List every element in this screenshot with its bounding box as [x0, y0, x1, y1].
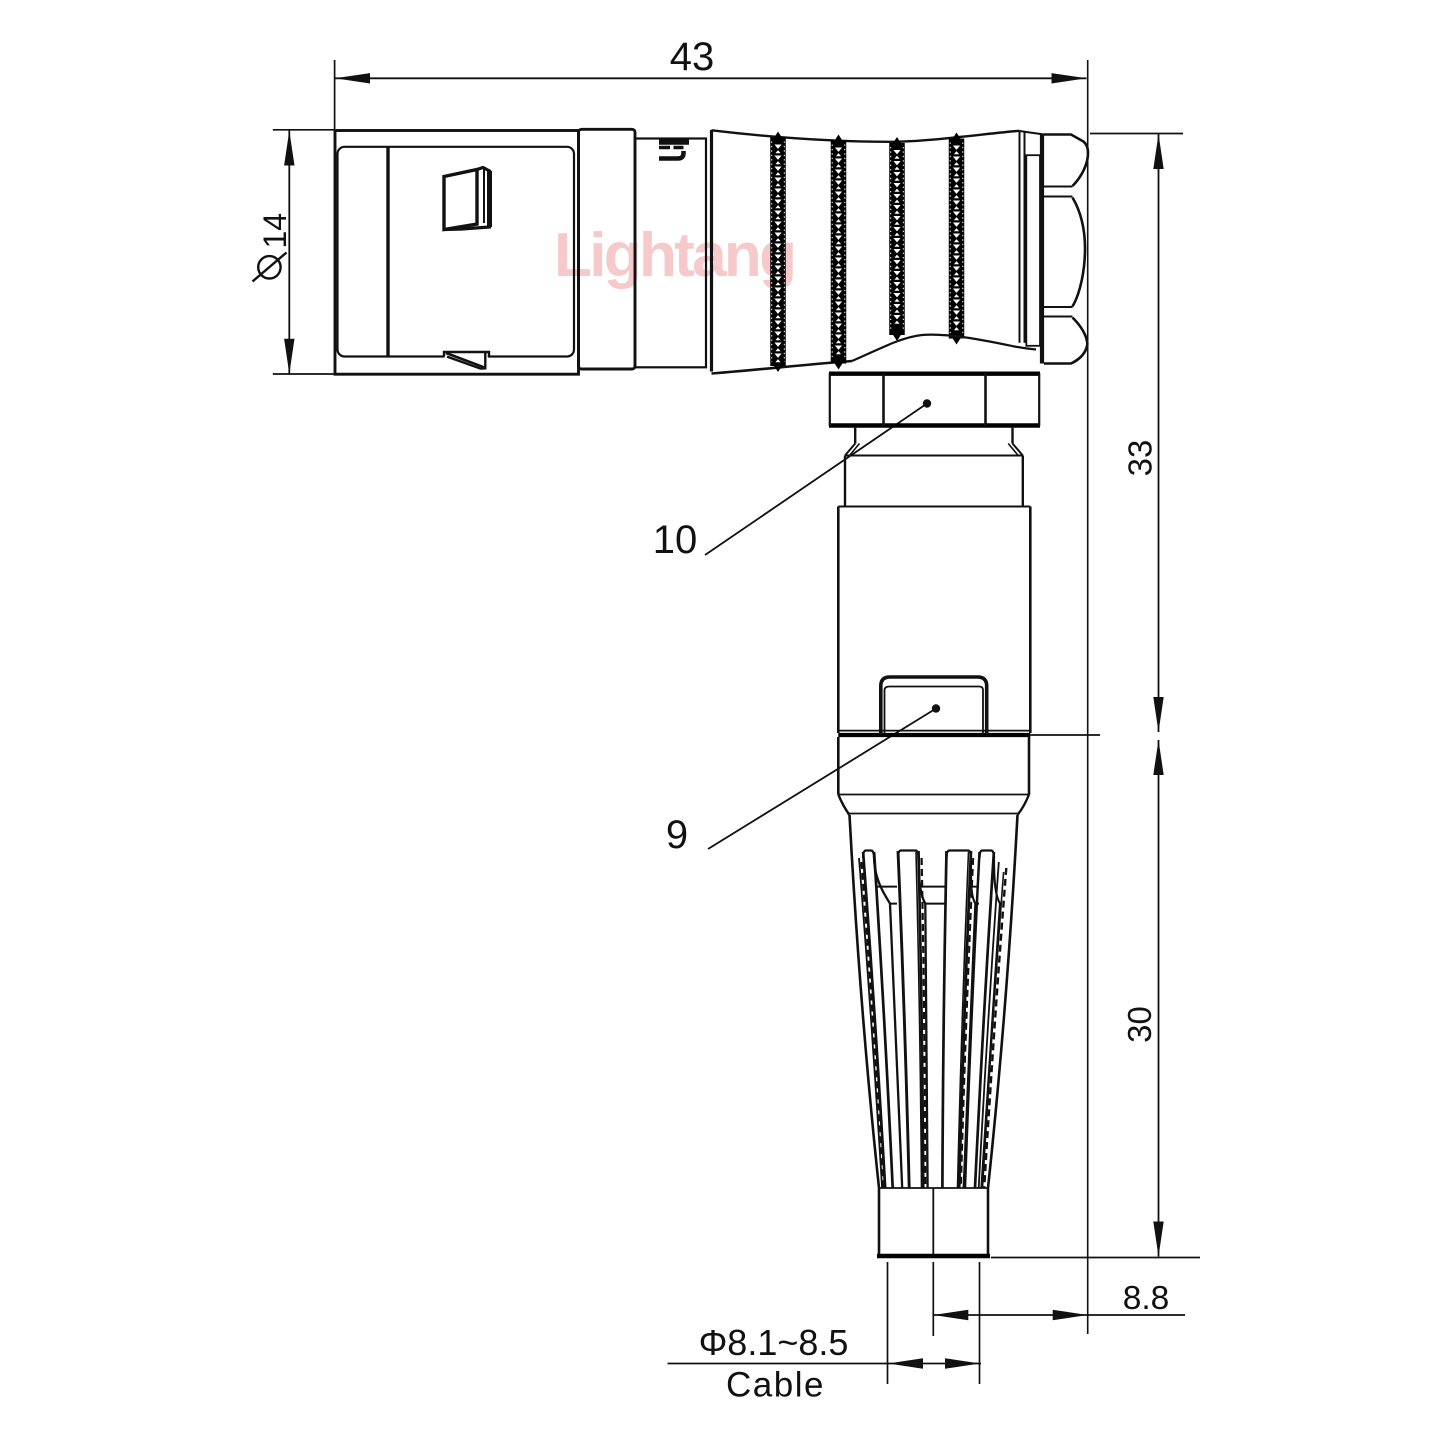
- svg-text:43: 43: [670, 35, 715, 79]
- svg-text:9: 9: [666, 813, 688, 857]
- svg-text:14: 14: [257, 213, 293, 249]
- svg-text:Cable: Cable: [726, 1366, 825, 1405]
- svg-text:Lightang: Lightang: [554, 221, 797, 290]
- svg-text:10: 10: [653, 518, 698, 562]
- svg-text:8.8: 8.8: [1123, 1280, 1170, 1317]
- svg-text:30: 30: [1121, 1006, 1158, 1043]
- svg-text:Φ8.1~8.5: Φ8.1~8.5: [699, 1322, 849, 1363]
- svg-text:33: 33: [1122, 440, 1159, 477]
